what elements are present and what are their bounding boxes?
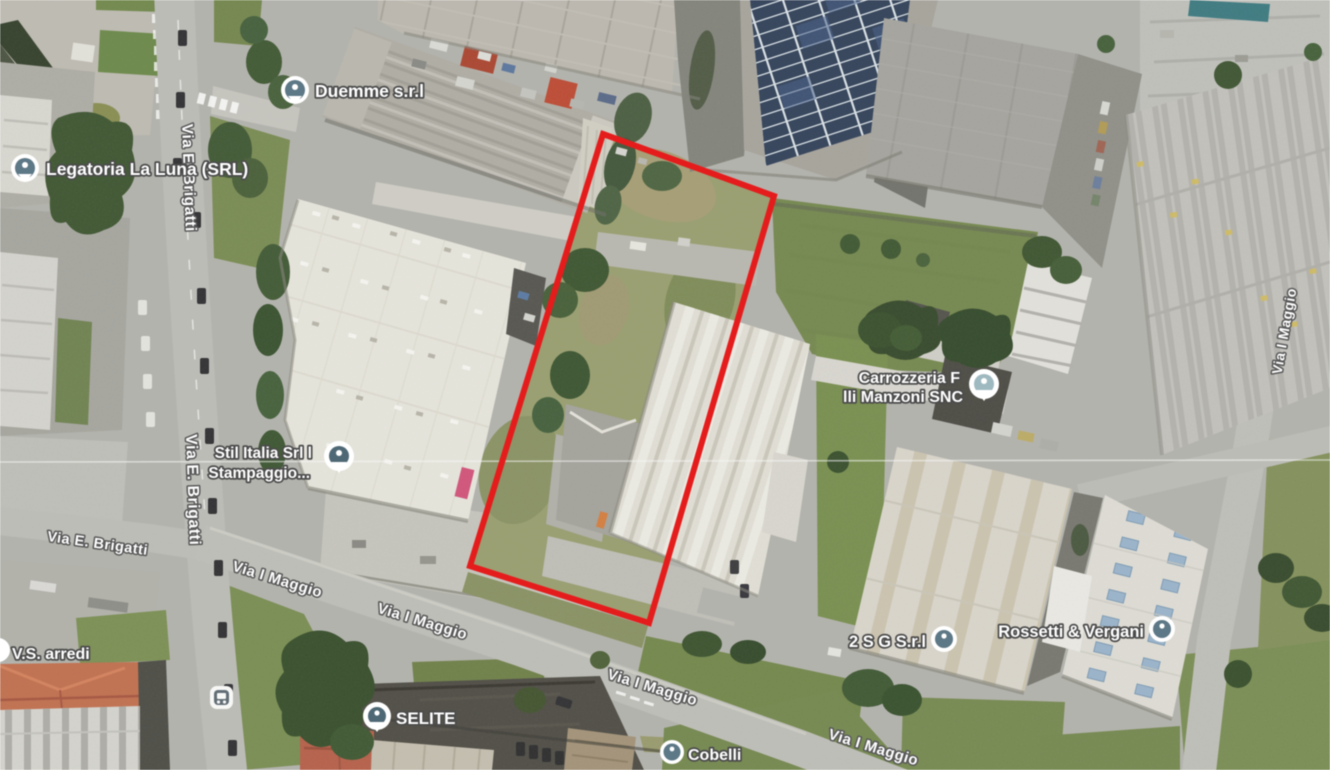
svg-text:lli Manzoni SNC: lli Manzoni SNC xyxy=(843,389,963,406)
svg-text:Legatoria La Luna (SRL): Legatoria La Luna (SRL) xyxy=(46,159,248,179)
svg-text:2 S G S.r.l: 2 S G S.r.l xyxy=(849,633,926,651)
svg-text:V.S. arredi: V.S. arredi xyxy=(12,646,90,663)
svg-text:Stil Italia Srl l: Stil Italia Srl l xyxy=(215,445,312,462)
svg-text:Carrozzeria F: Carrozzeria F xyxy=(859,370,961,387)
svg-text:SELITE: SELITE xyxy=(396,709,456,728)
svg-text:Stampaggio...: Stampaggio... xyxy=(208,465,310,482)
svg-text:Rossetti & Vergani: Rossetti & Vergani xyxy=(998,623,1144,641)
svg-text:Duemme s.r.l: Duemme s.r.l xyxy=(315,81,424,101)
svg-text:Cobelli: Cobelli xyxy=(688,747,741,764)
